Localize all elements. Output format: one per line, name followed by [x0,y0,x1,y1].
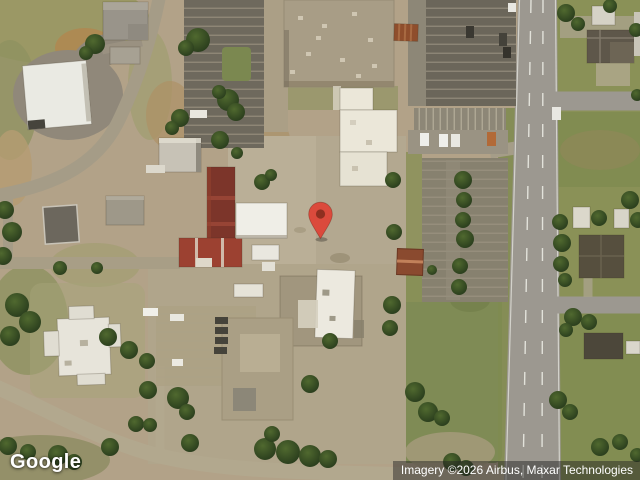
white-shed [626,341,640,354]
white-shed [573,207,590,228]
large-tan-roof-building [284,0,394,87]
grass-island [222,47,251,81]
house-roof [110,47,140,64]
dark-roof-house [584,333,623,359]
gray-roof-building [43,205,79,244]
map-marker-pin[interactable] [307,201,334,242]
attribution-text: Imagery ©2026 Airbus, Maxar Technologies [401,463,633,477]
map-viewport[interactable]: Google Imagery ©2026 Airbus, Maxar Techn… [0,0,640,480]
white-roof-building [315,269,355,338]
imagery-attribution: Imagery ©2026 Airbus, Maxar Technologies [393,461,640,480]
white-office-building [340,88,373,110]
pin-shadow [316,237,328,241]
pin-body [309,202,333,238]
white-roof-building [236,203,287,238]
pin-dot [316,209,325,218]
white-cross-building [57,317,111,376]
barn-roof [159,138,201,172]
google-logo[interactable]: Google [10,451,81,474]
white-metal-building [22,60,91,129]
white-shed [614,209,629,228]
red-roof-building [207,167,235,243]
gray-roof-building [106,196,144,225]
